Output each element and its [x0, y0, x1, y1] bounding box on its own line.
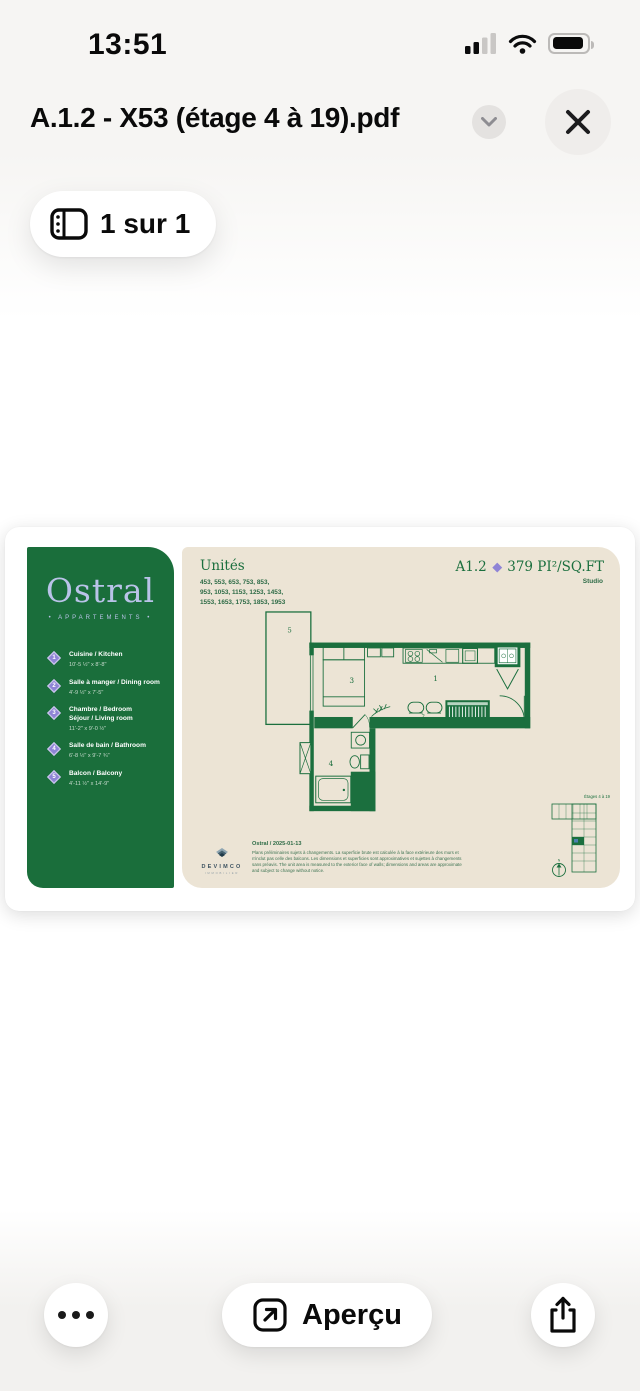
page-indicator-label: 1 sur 1 [100, 208, 190, 240]
legend-dims: 4'-9 ½" x 7'-5" [69, 690, 160, 696]
key-plan: Étages 4 à 19 [550, 791, 612, 883]
room-label-3: 3 [349, 676, 354, 685]
plan-disclaimer: Plans préliminaires sujets à changements… [252, 850, 464, 874]
plan-date: Ostral / 2025-01-13 [252, 841, 464, 847]
svg-text:N: N [558, 859, 561, 863]
legend-title-2: Séjour / Living room [69, 715, 133, 724]
plan-area: 379 PI²/SQ.FT [507, 559, 604, 575]
legend-dims: 10'-5 ½" x 8'-8" [69, 662, 123, 668]
legend-title: Cuisine / Kitchen [69, 651, 123, 660]
arrow-up-right-square-icon [252, 1297, 288, 1333]
diamond-icon: 3 [47, 706, 61, 720]
room-label-2: 2 [422, 714, 425, 720]
wifi-icon [507, 32, 538, 54]
close-icon [565, 109, 591, 135]
brand-wordmark: Ostral [27, 571, 174, 610]
legend-dims: 11'-2" x 9'-0 ½" [69, 726, 133, 732]
plan-panel: Unités 453, 553, 653, 753, 853, 953, 105… [182, 547, 620, 888]
legend-title: Chambre / Bedroom [69, 706, 133, 715]
battery-icon [548, 33, 590, 54]
preview-button[interactable]: Aperçu [222, 1283, 432, 1347]
legend-item-dining: 2 Salle à manger / Dining room 4'-9 ½" x… [47, 679, 174, 696]
legend-dims: 6'-8 ½" x 9'-7 ¾" [69, 753, 146, 759]
plan-notes: Ostral / 2025-01-13 Plans préliminaires … [252, 841, 464, 874]
pages-icon [50, 208, 88, 240]
chairs [408, 702, 442, 713]
room-label-4: 4 [329, 759, 334, 768]
unit-numbers: 453, 553, 653, 753, 853, 953, 1053, 1153… [200, 578, 285, 608]
legend-item-bathroom: 4 Salle de bain / Bathroom 6'-8 ½" x 9'-… [47, 742, 174, 759]
plan-header: A1.2 379 PI²/SQ.FT [456, 559, 604, 575]
diamond-icon: 4 [47, 742, 61, 756]
legend-title: Salle à manger / Dining room [69, 679, 160, 688]
key-plan-label: Étages 4 à 19 [584, 794, 611, 799]
brand-panel: Ostral • APPARTEMENTS • 1 Cuisine / Kitc… [27, 547, 174, 888]
file-title: A.1.2 - X53 (étage 4 à 19).pdf [30, 102, 399, 134]
legend-title: Balcon / Balcony [69, 770, 122, 779]
legend-dims: 4'-11 ½" x 14'-9" [69, 781, 122, 787]
walls [309, 643, 530, 812]
bed [323, 647, 394, 706]
room-label-1: 1 [433, 674, 438, 683]
unit-type: Studio [583, 578, 603, 585]
pdf-page[interactable]: Ostral • APPARTEMENTS • 1 Cuisine / Kitc… [5, 527, 635, 911]
legend-title: Salle de bain / Bathroom [69, 742, 146, 751]
more-options-button[interactable] [44, 1283, 108, 1347]
room-legend: 1 Cuisine / Kitchen 10'-5 ½" x 8'-8" 2 S… [47, 651, 174, 787]
status-icons [465, 32, 590, 54]
status-bar: 13:51 [0, 0, 640, 70]
devimco-logo: DEVIMCO IMMOBILIER [200, 848, 244, 876]
chevron-down-icon [481, 117, 497, 127]
brand-tagline: • APPARTEMENTS • [27, 615, 174, 621]
devimco-name: DEVIMCO [201, 864, 242, 870]
kitchen [403, 648, 495, 663]
title-chevron-button[interactable] [472, 105, 506, 139]
plant [371, 704, 390, 716]
more-icon [58, 1311, 94, 1319]
diamond-icon [492, 562, 501, 571]
cellular-signal-icon [465, 32, 497, 54]
preview-label: Aperçu [302, 1299, 402, 1332]
legend-item-balcony: 5 Balcon / Balcony 4'-11 ½" x 14'-9" [47, 770, 174, 787]
diamond-icon: 5 [47, 770, 61, 784]
share-icon [548, 1296, 578, 1334]
status-time: 13:51 [88, 28, 167, 62]
diamond-icon: 1 [47, 651, 61, 665]
close-button[interactable] [545, 89, 611, 155]
devimco-emblem-icon [211, 848, 233, 861]
room-label-5: 5 [287, 627, 291, 635]
devimco-division: IMMOBILIER [205, 871, 239, 875]
diamond-icon: 2 [47, 678, 61, 692]
legend-item-bedroom: 3 Chambre / Bedroom Séjour / Living room… [47, 706, 174, 732]
title-bar: A.1.2 - X53 (étage 4 à 19).pdf [0, 88, 640, 158]
unites-heading: Unités [200, 558, 245, 574]
quicklook-screen: 13:51 A.1.2 - X53 (étage 4 à 19).pdf [0, 0, 640, 1391]
page-indicator-button[interactable]: 1 sur 1 [30, 191, 216, 257]
plan-code: A1.2 [456, 559, 487, 575]
legend-item-kitchen: 1 Cuisine / Kitchen 10'-5 ½" x 8'-8" [47, 651, 174, 668]
compass-icon: N [553, 859, 566, 877]
floor-plan: 5 3 1 2 4 [262, 610, 548, 822]
share-button[interactable] [531, 1283, 595, 1347]
